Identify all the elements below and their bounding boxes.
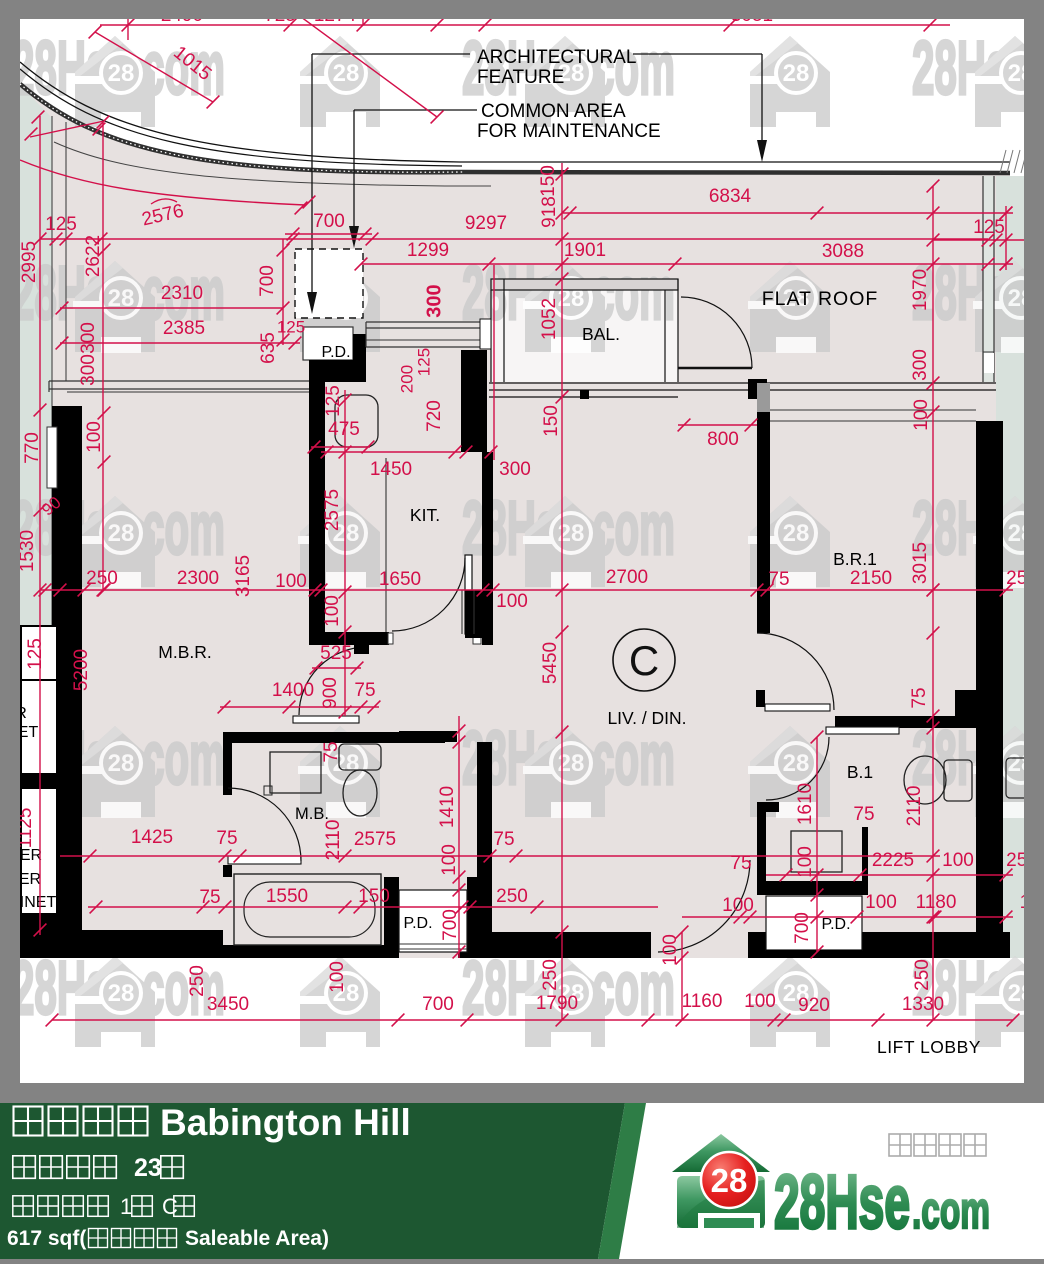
svg-text:5450: 5450 — [540, 642, 561, 684]
svg-text:75: 75 — [909, 687, 930, 708]
svg-text:P.D.: P.D. — [321, 344, 350, 361]
svg-text:28: 28 — [783, 520, 810, 547]
svg-text:700: 700 — [422, 994, 454, 1015]
svg-text:2225: 2225 — [872, 850, 914, 871]
svg-text:5200: 5200 — [71, 649, 92, 691]
svg-text:1425: 1425 — [131, 827, 173, 848]
svg-text:700: 700 — [440, 909, 461, 941]
svg-text:75: 75 — [853, 804, 874, 825]
svg-text:P.D.: P.D. — [821, 916, 850, 933]
svg-text:2995: 2995 — [19, 241, 40, 283]
svg-text:75: 75 — [199, 887, 220, 908]
svg-text:100: 100 — [722, 895, 754, 916]
svg-text:M.B.R.: M.B.R. — [158, 642, 211, 662]
svg-text:250: 250 — [496, 886, 528, 907]
svg-text:9297: 9297 — [465, 213, 507, 234]
svg-text:720: 720 — [424, 400, 445, 432]
svg-text:1450: 1450 — [370, 459, 412, 480]
svg-text:28Hse: 28Hse — [774, 1160, 910, 1245]
svg-text:ER: ER — [20, 847, 42, 864]
svg-text:125: 125 — [323, 385, 344, 417]
svg-text:28: 28 — [108, 60, 135, 87]
svg-text:Saleable Area): Saleable Area) — [185, 1227, 329, 1250]
svg-text:ARCHITECTURAL: ARCHITECTURAL — [477, 47, 636, 68]
svg-text:2575: 2575 — [322, 489, 343, 531]
svg-text:1299: 1299 — [407, 240, 449, 261]
svg-text:250: 250 — [540, 959, 561, 991]
svg-text:2575: 2575 — [354, 829, 396, 850]
svg-text:125: 125 — [45, 214, 77, 235]
svg-text:100: 100 — [795, 846, 816, 878]
svg-text:2622: 2622 — [83, 235, 104, 277]
svg-text:100: 100 — [322, 595, 343, 627]
svg-text:75: 75 — [216, 828, 237, 849]
svg-text:100: 100 — [496, 591, 528, 612]
svg-text:770: 770 — [22, 432, 43, 464]
svg-text:100: 100 — [84, 421, 105, 453]
svg-text:1530: 1530 — [17, 530, 38, 572]
svg-text:475: 475 — [328, 419, 360, 440]
svg-text:P.D.: P.D. — [403, 915, 432, 932]
svg-text:1410: 1410 — [437, 786, 458, 828]
svg-text:1970: 1970 — [910, 269, 931, 311]
svg-text:23: 23 — [134, 1154, 162, 1182]
svg-text:100: 100 — [327, 961, 348, 993]
svg-text:FOR MAINTENANCE: FOR MAINTENANCE — [477, 121, 661, 142]
svg-text:FLAT ROOF: FLAT ROOF — [762, 288, 879, 310]
svg-text:250: 250 — [86, 568, 118, 589]
svg-text:900: 900 — [320, 677, 341, 709]
svg-text:125: 125 — [277, 317, 305, 336]
svg-text:100: 100 — [942, 850, 974, 871]
svg-text:3165: 3165 — [233, 555, 254, 597]
svg-text:1: 1 — [120, 1194, 132, 1219]
svg-text:525: 525 — [320, 643, 352, 664]
svg-text:700: 700 — [257, 265, 278, 297]
svg-text:28: 28 — [783, 60, 810, 87]
svg-text:125: 125 — [25, 638, 46, 670]
svg-text:6834: 6834 — [709, 186, 752, 207]
svg-text:.com: .com — [912, 1182, 990, 1240]
svg-text:150: 150 — [541, 405, 562, 437]
svg-text:2310: 2310 — [161, 283, 203, 304]
svg-text:28: 28 — [108, 750, 135, 777]
svg-text:1650: 1650 — [379, 569, 421, 590]
svg-text:C: C — [629, 637, 659, 684]
svg-text:700: 700 — [313, 211, 345, 232]
svg-text:1790: 1790 — [536, 993, 578, 1014]
svg-text:150: 150 — [358, 886, 390, 907]
svg-text:75: 75 — [493, 829, 514, 850]
svg-text:1052: 1052 — [539, 298, 560, 340]
svg-text:300: 300 — [910, 349, 931, 381]
svg-text:2300: 2300 — [177, 568, 219, 589]
svg-text:75: 75 — [768, 569, 789, 590]
svg-text:1330: 1330 — [902, 994, 944, 1015]
svg-text:28: 28 — [783, 750, 810, 777]
svg-text:COMMON AREA: COMMON AREA — [481, 101, 626, 122]
svg-text:125: 125 — [973, 217, 1005, 238]
svg-text:250: 250 — [187, 965, 208, 997]
svg-text:918: 918 — [539, 196, 560, 228]
svg-text:75: 75 — [321, 741, 342, 762]
svg-text:28: 28 — [333, 60, 360, 87]
svg-text:920: 920 — [798, 995, 830, 1016]
svg-text:B.1: B.1 — [847, 762, 873, 782]
svg-text:3015: 3015 — [910, 542, 931, 584]
svg-text:100: 100 — [275, 571, 307, 592]
svg-text:1610: 1610 — [795, 783, 816, 825]
svg-text:75: 75 — [354, 680, 375, 701]
svg-text:150: 150 — [538, 165, 559, 197]
svg-text:1901: 1901 — [564, 240, 606, 261]
svg-text:700: 700 — [792, 912, 813, 944]
svg-text:635: 635 — [258, 332, 279, 364]
svg-text:Babington Hill: Babington Hill — [160, 1102, 411, 1143]
svg-text:1180: 1180 — [916, 892, 957, 913]
svg-text:KIT.: KIT. — [410, 505, 440, 525]
svg-text:INET: INET — [20, 894, 57, 911]
svg-text:100: 100 — [744, 991, 776, 1012]
svg-text:28: 28 — [108, 520, 135, 547]
svg-text:LIFT LOBBY: LIFT LOBBY — [877, 1037, 981, 1057]
svg-text:1160: 1160 — [682, 991, 723, 1012]
svg-text:250: 250 — [912, 959, 933, 991]
svg-text:125: 125 — [414, 348, 433, 376]
svg-text:LIV. / DIN.: LIV. / DIN. — [607, 708, 686, 728]
svg-text:300: 300 — [423, 284, 445, 317]
svg-text:300: 300 — [78, 354, 99, 386]
svg-text:2700: 2700 — [606, 567, 648, 588]
svg-text:28: 28 — [711, 1162, 748, 1199]
svg-text:100: 100 — [865, 892, 897, 913]
svg-text:3088: 3088 — [822, 241, 864, 262]
svg-text:3450: 3450 — [207, 994, 249, 1015]
svg-text:1400: 1400 — [272, 680, 314, 701]
svg-text:2385: 2385 — [163, 318, 205, 339]
svg-text:100: 100 — [439, 844, 460, 876]
svg-text:300: 300 — [78, 322, 99, 354]
svg-text:B.R.1: B.R.1 — [833, 549, 877, 569]
svg-text:ER: ER — [19, 871, 41, 888]
svg-text:2150: 2150 — [850, 568, 892, 589]
svg-text:ET: ET — [18, 724, 39, 741]
svg-text:2110: 2110 — [323, 820, 344, 861]
svg-text:100: 100 — [660, 934, 681, 966]
svg-text:28: 28 — [108, 980, 135, 1007]
svg-text:800: 800 — [707, 429, 739, 450]
svg-text:300: 300 — [499, 459, 531, 480]
svg-text:75: 75 — [730, 853, 751, 874]
svg-text:FEATURE: FEATURE — [477, 67, 564, 88]
svg-text:2110: 2110 — [904, 786, 925, 827]
svg-text:617 sqf(: 617 sqf( — [7, 1227, 86, 1250]
svg-text:100: 100 — [911, 399, 932, 431]
svg-text:BAL.: BAL. — [582, 324, 620, 344]
svg-text:1550: 1550 — [266, 886, 308, 907]
